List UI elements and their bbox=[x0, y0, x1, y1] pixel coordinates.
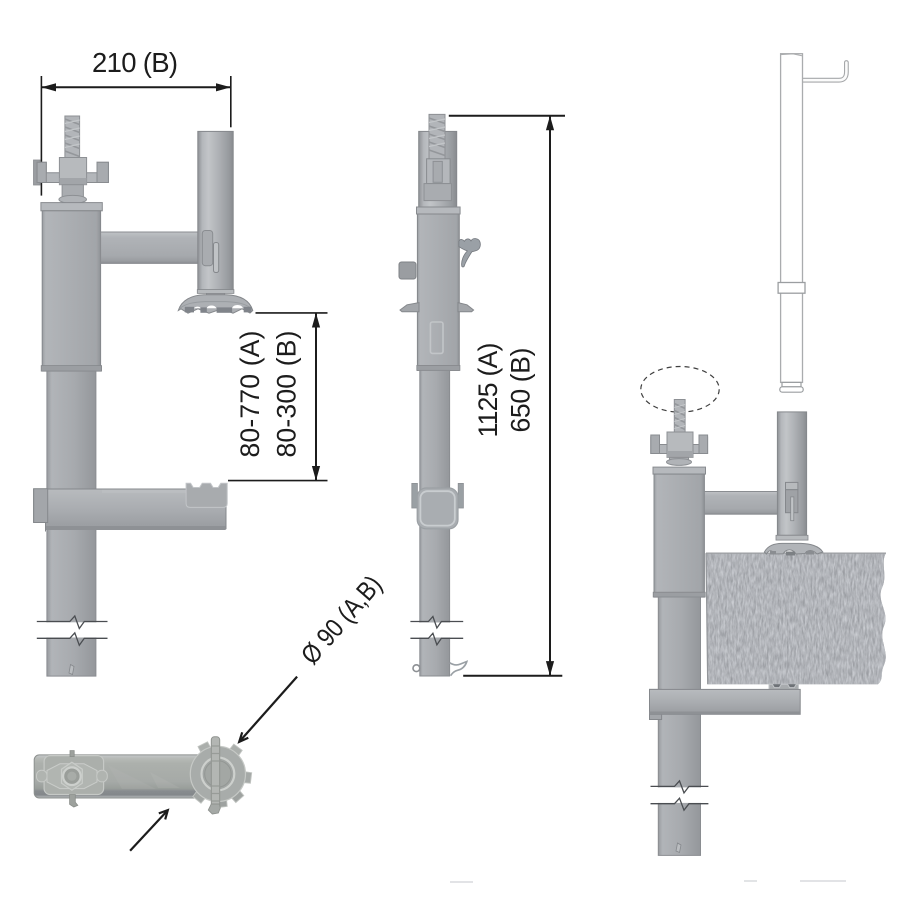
svg-text:80-300 (B): 80-300 (B) bbox=[272, 331, 302, 458]
svg-text:1125 (A): 1125 (A) bbox=[473, 343, 503, 438]
svg-text:650 (B): 650 (B) bbox=[506, 348, 536, 433]
svg-text:Ø 90 (A,B): Ø 90 (A,B) bbox=[295, 570, 388, 670]
svg-text:210 (B): 210 (B) bbox=[92, 47, 178, 78]
svg-text:80-770 (A): 80-770 (A) bbox=[235, 331, 265, 458]
